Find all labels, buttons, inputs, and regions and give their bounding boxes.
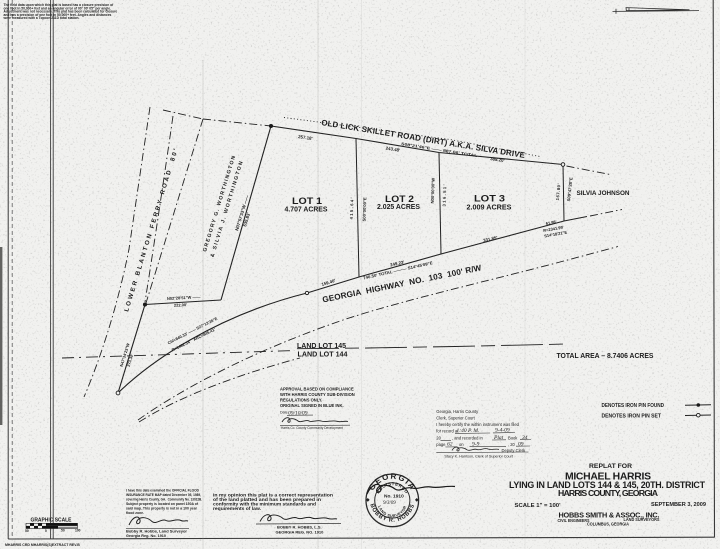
svg-text:on: on bbox=[459, 442, 464, 447]
svg-text:20: 20 bbox=[436, 436, 441, 441]
svg-text:4.707 ACRES: 4.707 ACRES bbox=[285, 207, 328, 214]
svg-text:I have this date examined the: I have this date examined the OFFICIAL F… bbox=[126, 489, 200, 493]
svg-text:LOT 1: LOT 1 bbox=[292, 196, 323, 207]
svg-text:LAND LOT 144: LAND LOT 144 bbox=[298, 351, 348, 358]
svg-text:50: 50 bbox=[61, 529, 65, 533]
svg-text:ORIGINAL SIGNED IN BLUE INK.: ORIGINAL SIGNED IN BLUE INK. bbox=[280, 403, 344, 408]
svg-text:Stacy K. Harrison, Clerk of Su: Stacy K. Harrison, Clerk of Superior Cou… bbox=[444, 455, 512, 459]
svg-text:9/3/09: 9/3/09 bbox=[383, 501, 396, 506]
svg-text:, and recorded in: , and recorded in bbox=[452, 436, 483, 441]
svg-text:MHARRIS CRD MHARRIS(S)EXTRACT: MHARRIS CRD MHARRIS(S)EXTRACT REV.B bbox=[5, 543, 80, 547]
svg-text:HARRIS COUNTY, GEORGIA: HARRIS COUNTY, GEORGIA bbox=[558, 488, 659, 498]
svg-text:SEPTEMBER 3, 2009: SEPTEMBER 3, 2009 bbox=[651, 502, 706, 508]
svg-text:Date: Date bbox=[280, 411, 288, 415]
svg-text:SCALE 1" = 100': SCALE 1" = 100' bbox=[515, 503, 562, 509]
svg-text:GEORGIA REG. NO. 1910: GEORGIA REG. NO. 1910 bbox=[276, 530, 325, 535]
svg-text:, 20: , 20 bbox=[508, 442, 516, 447]
svg-text:DENOTES IRON PIN SET: DENOTES IRON PIN SET bbox=[602, 413, 662, 419]
svg-text:REPLAT FOR: REPLAT FOR bbox=[589, 463, 632, 470]
svg-text:CIVIL ENGINEERS: CIVIL ENGINEERS bbox=[558, 518, 590, 523]
svg-text:316.51': 316.51' bbox=[442, 184, 448, 206]
svg-text:REGULATIONS ONLY.: REGULATIONS ONLY. bbox=[280, 398, 322, 403]
svg-text:said map. This property is not: said map. This property is not in a 100 … bbox=[126, 507, 198, 511]
svg-text:TOTAL AREA – 8.7406 ACRES: TOTAL AREA – 8.7406 ACRES bbox=[557, 353, 654, 360]
svg-text:50: 50 bbox=[25, 529, 29, 533]
svg-text:2.025 ACRES: 2.025 ACRES bbox=[377, 204, 420, 211]
svg-text:were measured with a Topcon 21: were measured with a Topcon 211D total s… bbox=[3, 16, 80, 20]
svg-text:0: 0 bbox=[45, 529, 47, 533]
svg-text:09: 09 bbox=[518, 442, 524, 448]
svg-text:No. 1910: No. 1910 bbox=[384, 494, 404, 500]
svg-text:requirements of law.: requirements of law. bbox=[213, 506, 261, 511]
svg-text:2.009 ACRES: 2.009 ACRES bbox=[467, 205, 512, 212]
svg-text:222.00': 222.00' bbox=[174, 302, 187, 308]
svg-text:Clerk, Superior Court: Clerk, Superior Court bbox=[436, 415, 475, 420]
svg-text:LAND LOT 145: LAND LOT 145 bbox=[297, 343, 346, 350]
svg-text:I hereby certify the within in: I hereby certify the within instrument w… bbox=[436, 422, 519, 427]
svg-text:415.64': 415.64' bbox=[349, 197, 355, 219]
svg-text:DENOTES IRON PIN FOUND: DENOTES IRON PIN FOUND bbox=[602, 403, 665, 409]
svg-text:APPROVAL BASED ON COMPLIANCE: APPROVAL BASED ON COMPLIANCE bbox=[280, 387, 354, 392]
svg-text:S00°00'00"E: S00°00'00"E bbox=[362, 197, 368, 222]
svg-text:LOT 3: LOT 3 bbox=[474, 194, 505, 205]
svg-text:100: 100 bbox=[75, 528, 81, 532]
svg-text:WITH HARRIS COUNTY SUB-DIVISIO: WITH HARRIS COUNTY SUB-DIVISION bbox=[280, 392, 355, 397]
svg-text:INSURANCE RATE MAP dated Decem: INSURANCE RATE MAP dated December 05, 19… bbox=[126, 493, 201, 497]
svg-text:Harris Co. County Community De: Harris Co. County Community Development bbox=[281, 426, 343, 430]
svg-text:Book: Book bbox=[508, 436, 518, 441]
svg-text:Bobby R. Hobbs, Land Surveyor: Bobby R. Hobbs, Land Surveyor bbox=[126, 530, 188, 534]
svg-text:flood zone.: flood zone. bbox=[126, 511, 144, 515]
svg-text:Georgia, Harris County: Georgia, Harris County bbox=[436, 409, 479, 414]
svg-text:page: page bbox=[436, 442, 446, 447]
svg-text:N00°00'00"W: N00°00'00"W bbox=[430, 178, 436, 204]
svg-text:GRAPHIC SCALE: GRAPHIC SCALE bbox=[31, 518, 72, 524]
svg-text:Subject property is located on: Subject property is located on panel 150… bbox=[126, 502, 199, 506]
svg-text:09/10/09: 09/10/09 bbox=[288, 411, 308, 417]
svg-text:covering Harris County, GA. C: covering Harris County, GA. Community No… bbox=[126, 498, 202, 502]
svg-text:COLUMBUS, GEORGIA: COLUMBUS, GEORGIA bbox=[587, 522, 629, 527]
svg-text:Georgia Reg. No. 1910: Georgia Reg. No. 1910 bbox=[126, 534, 166, 538]
svg-text:SILVIA JOHNSON: SILVIA JOHNSON bbox=[577, 190, 630, 197]
